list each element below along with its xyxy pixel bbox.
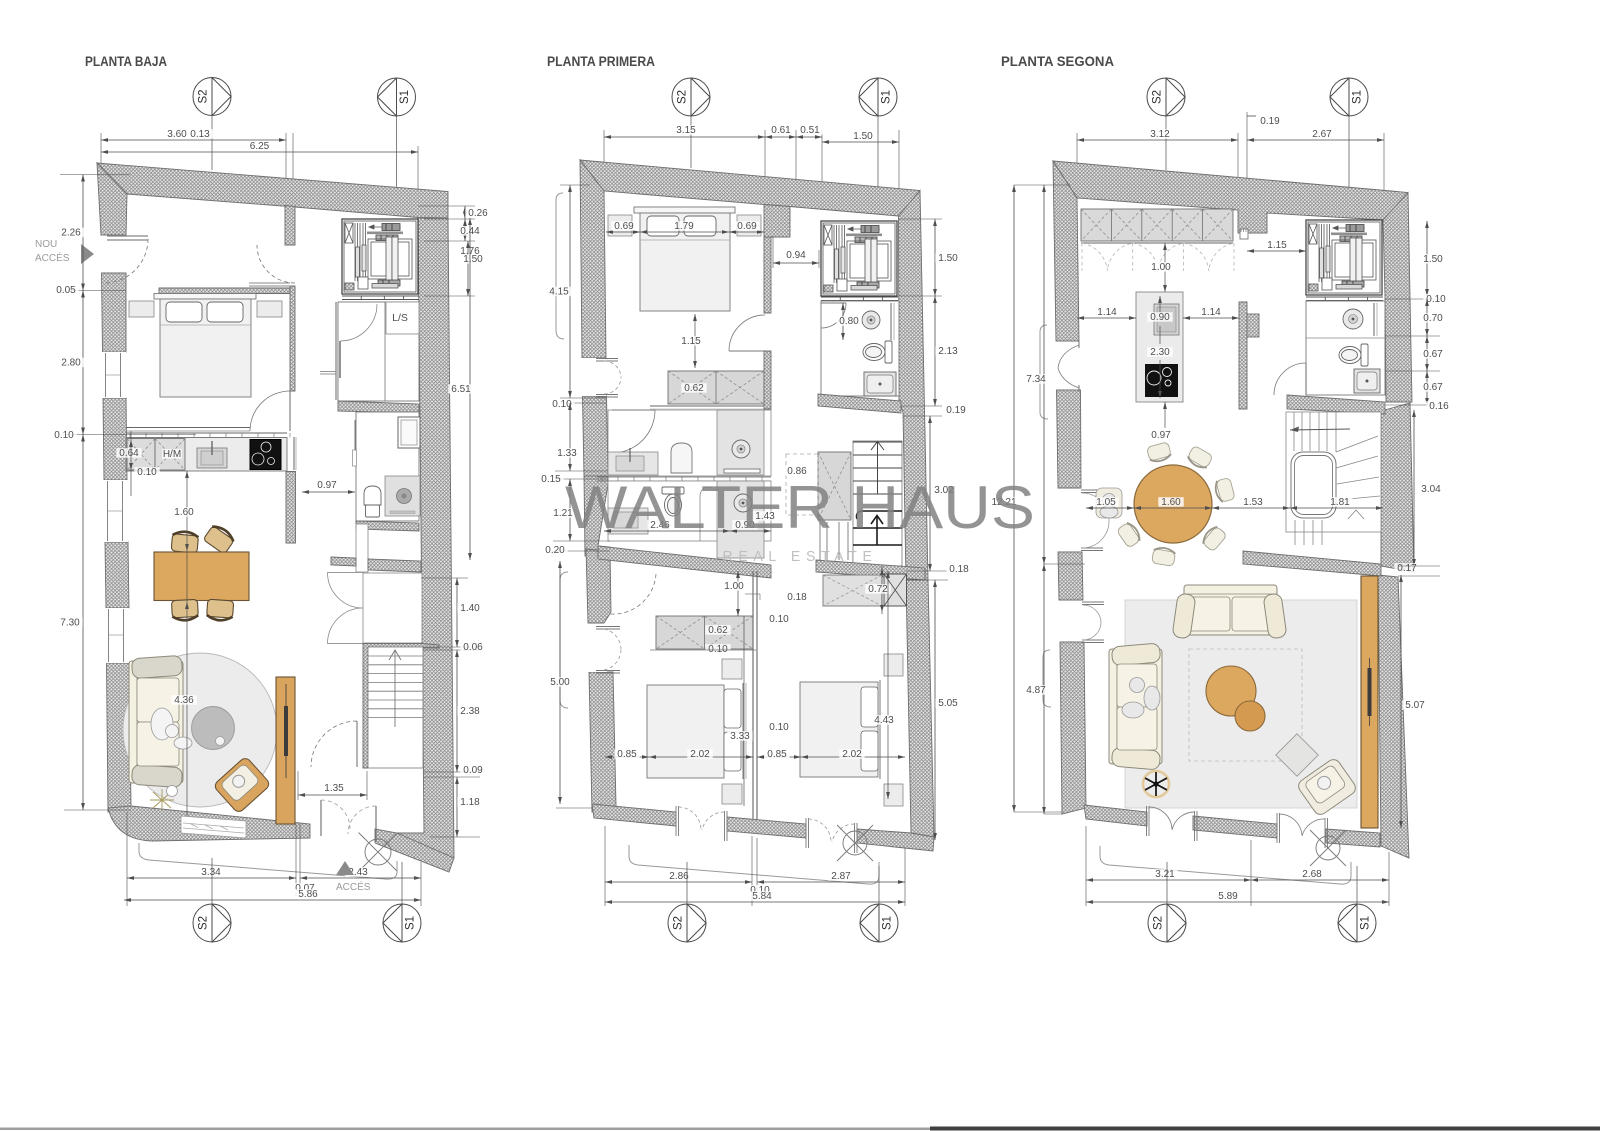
svg-text:1.15: 1.15 <box>681 336 701 347</box>
svg-text:NOU: NOU <box>35 239 57 250</box>
svg-text:0.80: 0.80 <box>839 316 859 327</box>
svg-text:1.50: 1.50 <box>853 131 873 142</box>
svg-text:4.43: 4.43 <box>874 715 894 726</box>
svg-text:0.19: 0.19 <box>946 405 966 416</box>
svg-text:0.72: 0.72 <box>868 584 888 595</box>
svg-text:1.81: 1.81 <box>1330 497 1350 508</box>
svg-text:0.16: 0.16 <box>1429 401 1449 412</box>
svg-text:0.97: 0.97 <box>317 480 337 491</box>
svg-text:5.05: 5.05 <box>938 698 958 709</box>
svg-text:H/M: H/M <box>163 449 181 460</box>
svg-text:PLANTA PRIMERA: PLANTA PRIMERA <box>547 54 655 69</box>
svg-text:0.85: 0.85 <box>767 749 787 760</box>
svg-text:0.10: 0.10 <box>1426 294 1446 305</box>
svg-text:0.85: 0.85 <box>617 749 637 760</box>
svg-text:0.18: 0.18 <box>787 592 807 603</box>
svg-text:0.51: 0.51 <box>800 125 820 136</box>
svg-text:1.33: 1.33 <box>557 448 577 459</box>
svg-text:S2: S2 <box>1152 90 1164 104</box>
svg-text:0.13: 0.13 <box>190 129 210 140</box>
svg-text:0.26: 0.26 <box>468 208 488 219</box>
svg-text:1.60: 1.60 <box>1161 497 1181 508</box>
svg-text:0.10: 0.10 <box>54 430 74 441</box>
svg-text:3.15: 3.15 <box>676 125 696 136</box>
svg-text:2.02: 2.02 <box>842 749 862 760</box>
svg-text:7.30: 7.30 <box>60 617 80 628</box>
svg-text:0.05: 0.05 <box>56 285 76 296</box>
svg-text:1.35: 1.35 <box>324 783 344 794</box>
svg-text:1.60: 1.60 <box>174 507 194 518</box>
svg-text:3.34: 3.34 <box>201 867 221 878</box>
svg-text:5.89: 5.89 <box>1218 891 1238 902</box>
svg-text:3.12: 3.12 <box>1150 129 1170 140</box>
svg-text:5.86: 5.86 <box>298 889 318 900</box>
svg-text:S2: S2 <box>198 89 210 103</box>
svg-text:1.14: 1.14 <box>1097 307 1117 318</box>
svg-text:2.87: 2.87 <box>831 871 851 882</box>
svg-text:0.97: 0.97 <box>1151 430 1171 441</box>
svg-text:3.04: 3.04 <box>1421 484 1441 495</box>
svg-text:S2: S2 <box>673 916 685 930</box>
svg-text:S1: S1 <box>1352 90 1364 104</box>
svg-text:0.69: 0.69 <box>737 221 757 232</box>
svg-text:WALTER HAUS: WALTER HAUS <box>565 474 1035 541</box>
svg-text:0.62: 0.62 <box>708 625 728 636</box>
svg-text:0.94: 0.94 <box>786 250 806 261</box>
svg-text:1.05: 1.05 <box>1096 497 1116 508</box>
svg-text:PLANTA BAJA: PLANTA BAJA <box>85 54 167 69</box>
svg-text:0.70: 0.70 <box>1423 313 1443 324</box>
svg-text:S1: S1 <box>399 90 411 104</box>
svg-text:5.07: 5.07 <box>1405 700 1425 711</box>
svg-text:L/S: L/S <box>392 312 408 324</box>
svg-text:0.67: 0.67 <box>1423 349 1443 360</box>
svg-text:3.21: 3.21 <box>1155 869 1175 880</box>
svg-text:0.90: 0.90 <box>1150 312 1170 323</box>
svg-text:6.25: 6.25 <box>250 141 270 152</box>
svg-text:2.86: 2.86 <box>669 871 689 882</box>
svg-text:S1: S1 <box>881 90 893 104</box>
svg-text:S1: S1 <box>1360 916 1372 930</box>
svg-text:0.10: 0.10 <box>708 644 728 655</box>
svg-text:2.80: 2.80 <box>61 358 81 369</box>
svg-text:1.79: 1.79 <box>674 221 694 232</box>
svg-text:ACCÉS: ACCÉS <box>336 880 371 893</box>
svg-text:2.67: 2.67 <box>1312 129 1332 140</box>
svg-text:1.50: 1.50 <box>1423 254 1443 265</box>
svg-text:1.40: 1.40 <box>460 603 480 614</box>
svg-text:0.09: 0.09 <box>463 765 483 776</box>
svg-text:0.19: 0.19 <box>1260 116 1280 127</box>
svg-text:1.18: 1.18 <box>460 797 480 808</box>
svg-text:6.51: 6.51 <box>451 384 471 395</box>
svg-text:S1: S1 <box>405 916 417 930</box>
svg-text:1.50: 1.50 <box>463 254 483 265</box>
svg-text:1.53: 1.53 <box>1243 497 1263 508</box>
svg-text:1.00: 1.00 <box>724 581 744 592</box>
svg-text:1.50: 1.50 <box>938 253 958 264</box>
svg-text:S2: S2 <box>677 90 689 104</box>
svg-text:1.14: 1.14 <box>1201 307 1221 318</box>
svg-text:S1: S1 <box>882 916 894 930</box>
svg-text:0.06: 0.06 <box>463 642 483 653</box>
svg-text:0.10: 0.10 <box>137 467 157 478</box>
svg-text:0.67: 0.67 <box>1423 382 1443 393</box>
svg-text:2.68: 2.68 <box>1302 869 1322 880</box>
svg-text:0.61: 0.61 <box>771 125 791 136</box>
svg-text:S2: S2 <box>1153 916 1165 930</box>
svg-text:4.87: 4.87 <box>1026 685 1046 696</box>
svg-text:S2: S2 <box>198 916 210 930</box>
svg-text:PLANTA SEGONA: PLANTA SEGONA <box>1001 54 1114 69</box>
svg-text:0.10: 0.10 <box>769 614 789 625</box>
svg-text:5.84: 5.84 <box>752 891 772 902</box>
svg-text:3.33: 3.33 <box>730 731 750 742</box>
svg-text:2.30: 2.30 <box>1150 347 1170 358</box>
svg-text:ACCÉS: ACCÉS <box>35 251 70 264</box>
svg-text:2.02: 2.02 <box>690 749 710 760</box>
svg-text:2.38: 2.38 <box>460 706 480 717</box>
svg-text:0.20: 0.20 <box>545 545 565 556</box>
svg-text:0.64: 0.64 <box>119 448 139 459</box>
svg-text:0.17: 0.17 <box>1397 563 1417 574</box>
svg-text:2.26: 2.26 <box>61 228 81 239</box>
svg-text:REAL ESTATE: REAL ESTATE <box>723 548 878 565</box>
svg-text:1.00: 1.00 <box>1151 262 1171 273</box>
svg-text:0.62: 0.62 <box>684 383 704 394</box>
svg-text:5.00: 5.00 <box>550 677 570 688</box>
svg-text:0.18: 0.18 <box>949 564 969 575</box>
svg-text:0.10: 0.10 <box>769 722 789 733</box>
svg-text:0.69: 0.69 <box>614 221 634 232</box>
svg-text:2.13: 2.13 <box>938 346 958 357</box>
svg-text:4.36: 4.36 <box>174 695 194 706</box>
svg-text:3.60: 3.60 <box>167 129 187 140</box>
svg-text:1.15: 1.15 <box>1267 240 1287 251</box>
svg-text:0.15: 0.15 <box>541 474 561 485</box>
svg-text:4.15: 4.15 <box>549 287 569 298</box>
svg-text:7.34: 7.34 <box>1026 374 1046 385</box>
